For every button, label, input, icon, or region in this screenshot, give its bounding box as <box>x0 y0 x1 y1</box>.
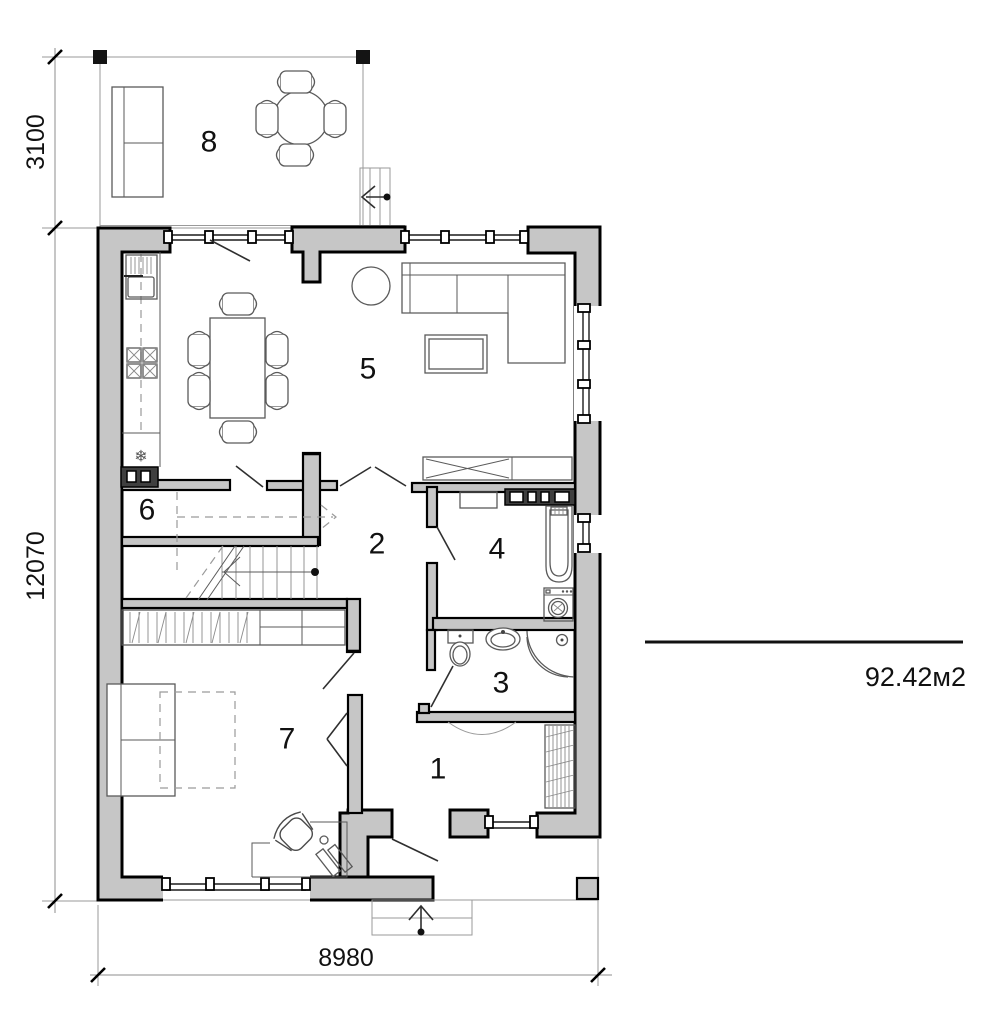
wall-entry-stub <box>450 810 488 837</box>
wall-stub-hall <box>347 599 360 652</box>
bathroom-door-swing <box>437 527 455 560</box>
room-label-6: 6 <box>139 494 156 527</box>
porch-outline <box>433 838 598 900</box>
room-label-1: 1 <box>430 753 447 786</box>
wall-wc-entry <box>417 712 575 722</box>
window-bottom <box>162 874 310 903</box>
window-right-bath <box>574 514 602 553</box>
porch-steps <box>372 900 472 936</box>
floor-plan-drawing: 3100 12070 8980 <box>0 0 1007 1024</box>
stair-rail-dot <box>311 568 319 576</box>
floor-plan-page: 3100 12070 8980 <box>0 0 1007 1024</box>
room-label-7: 7 <box>279 723 296 756</box>
porch-column <box>577 878 598 899</box>
terrace-post <box>93 50 107 64</box>
room-label-5: 5 <box>360 353 377 386</box>
stove <box>127 348 157 378</box>
stair-break-line <box>207 546 244 600</box>
living-double-door-left <box>340 467 371 486</box>
washbasin <box>486 628 520 650</box>
entry-door-glazing <box>485 816 538 828</box>
wall-top-middle <box>292 227 405 282</box>
bedroom-door-swing <box>323 653 354 689</box>
kitchen: ❄ <box>121 252 160 487</box>
room-labels: 1 2 3 4 5 6 7 8 <box>139 126 510 786</box>
wall-pantry-bottom <box>122 537 318 546</box>
wall-hall-bath-upper <box>427 487 437 527</box>
wc-door-swing <box>431 666 453 707</box>
room-label-2: 2 <box>369 528 386 561</box>
living-furniture <box>352 263 572 480</box>
area-value: 92.42м2 <box>865 662 966 692</box>
wall-end-cap <box>419 704 429 713</box>
vanity-unit <box>505 489 575 505</box>
terrace-door-swing <box>210 240 250 261</box>
entry-arch <box>448 722 516 735</box>
bedroom-folding-door <box>327 713 347 766</box>
round-table <box>274 91 328 145</box>
room-label-3: 3 <box>493 667 510 700</box>
window-top-left <box>164 231 293 243</box>
dimension-terrace-depth: 3100 <box>22 114 50 170</box>
wall-pier-stair <box>303 453 320 545</box>
toilet <box>448 630 473 666</box>
area-annotation: 92.42м2 <box>645 642 966 692</box>
window-right-living <box>574 304 602 423</box>
wall-wc-left <box>427 630 435 670</box>
coffee-table <box>425 335 487 373</box>
bath-shelf <box>460 492 497 508</box>
terrace-bench <box>112 87 163 197</box>
porch-door-swing <box>392 839 438 861</box>
pantry-door-swing <box>236 466 263 487</box>
dining-set <box>188 293 288 443</box>
wall-entry-pier <box>340 810 392 877</box>
understair-wardrobe <box>122 610 345 645</box>
bedroom-furniture <box>107 610 352 880</box>
terrace <box>93 50 405 228</box>
room-label-4: 4 <box>489 533 506 566</box>
terrace-dining-set <box>256 71 346 166</box>
living-double-door-right <box>375 467 406 486</box>
terrace-post <box>356 50 370 64</box>
corner-shower <box>527 631 574 677</box>
entry-hall <box>448 722 575 808</box>
office-chair <box>270 808 319 857</box>
washing-machine <box>544 588 573 621</box>
bathtub <box>546 506 572 582</box>
side-table <box>352 267 390 305</box>
wall-bedroom-entry <box>348 695 362 813</box>
bedroom-sofa <box>107 684 175 796</box>
dining-table <box>210 318 265 418</box>
kitchen-unit <box>121 467 158 487</box>
window-top-right <box>401 231 528 243</box>
terrace-steps <box>360 168 391 228</box>
dimension-house-width: 8980 <box>318 944 374 972</box>
fridge-icon: ❄ <box>134 449 147 466</box>
wall-stair-bottom <box>122 599 347 608</box>
dimension-house-depth: 12070 <box>22 531 50 601</box>
bathroom-fixtures <box>448 489 575 677</box>
room-label-8: 8 <box>201 126 218 159</box>
hall-wardrobe <box>545 725 575 808</box>
tv-unit <box>423 457 572 480</box>
